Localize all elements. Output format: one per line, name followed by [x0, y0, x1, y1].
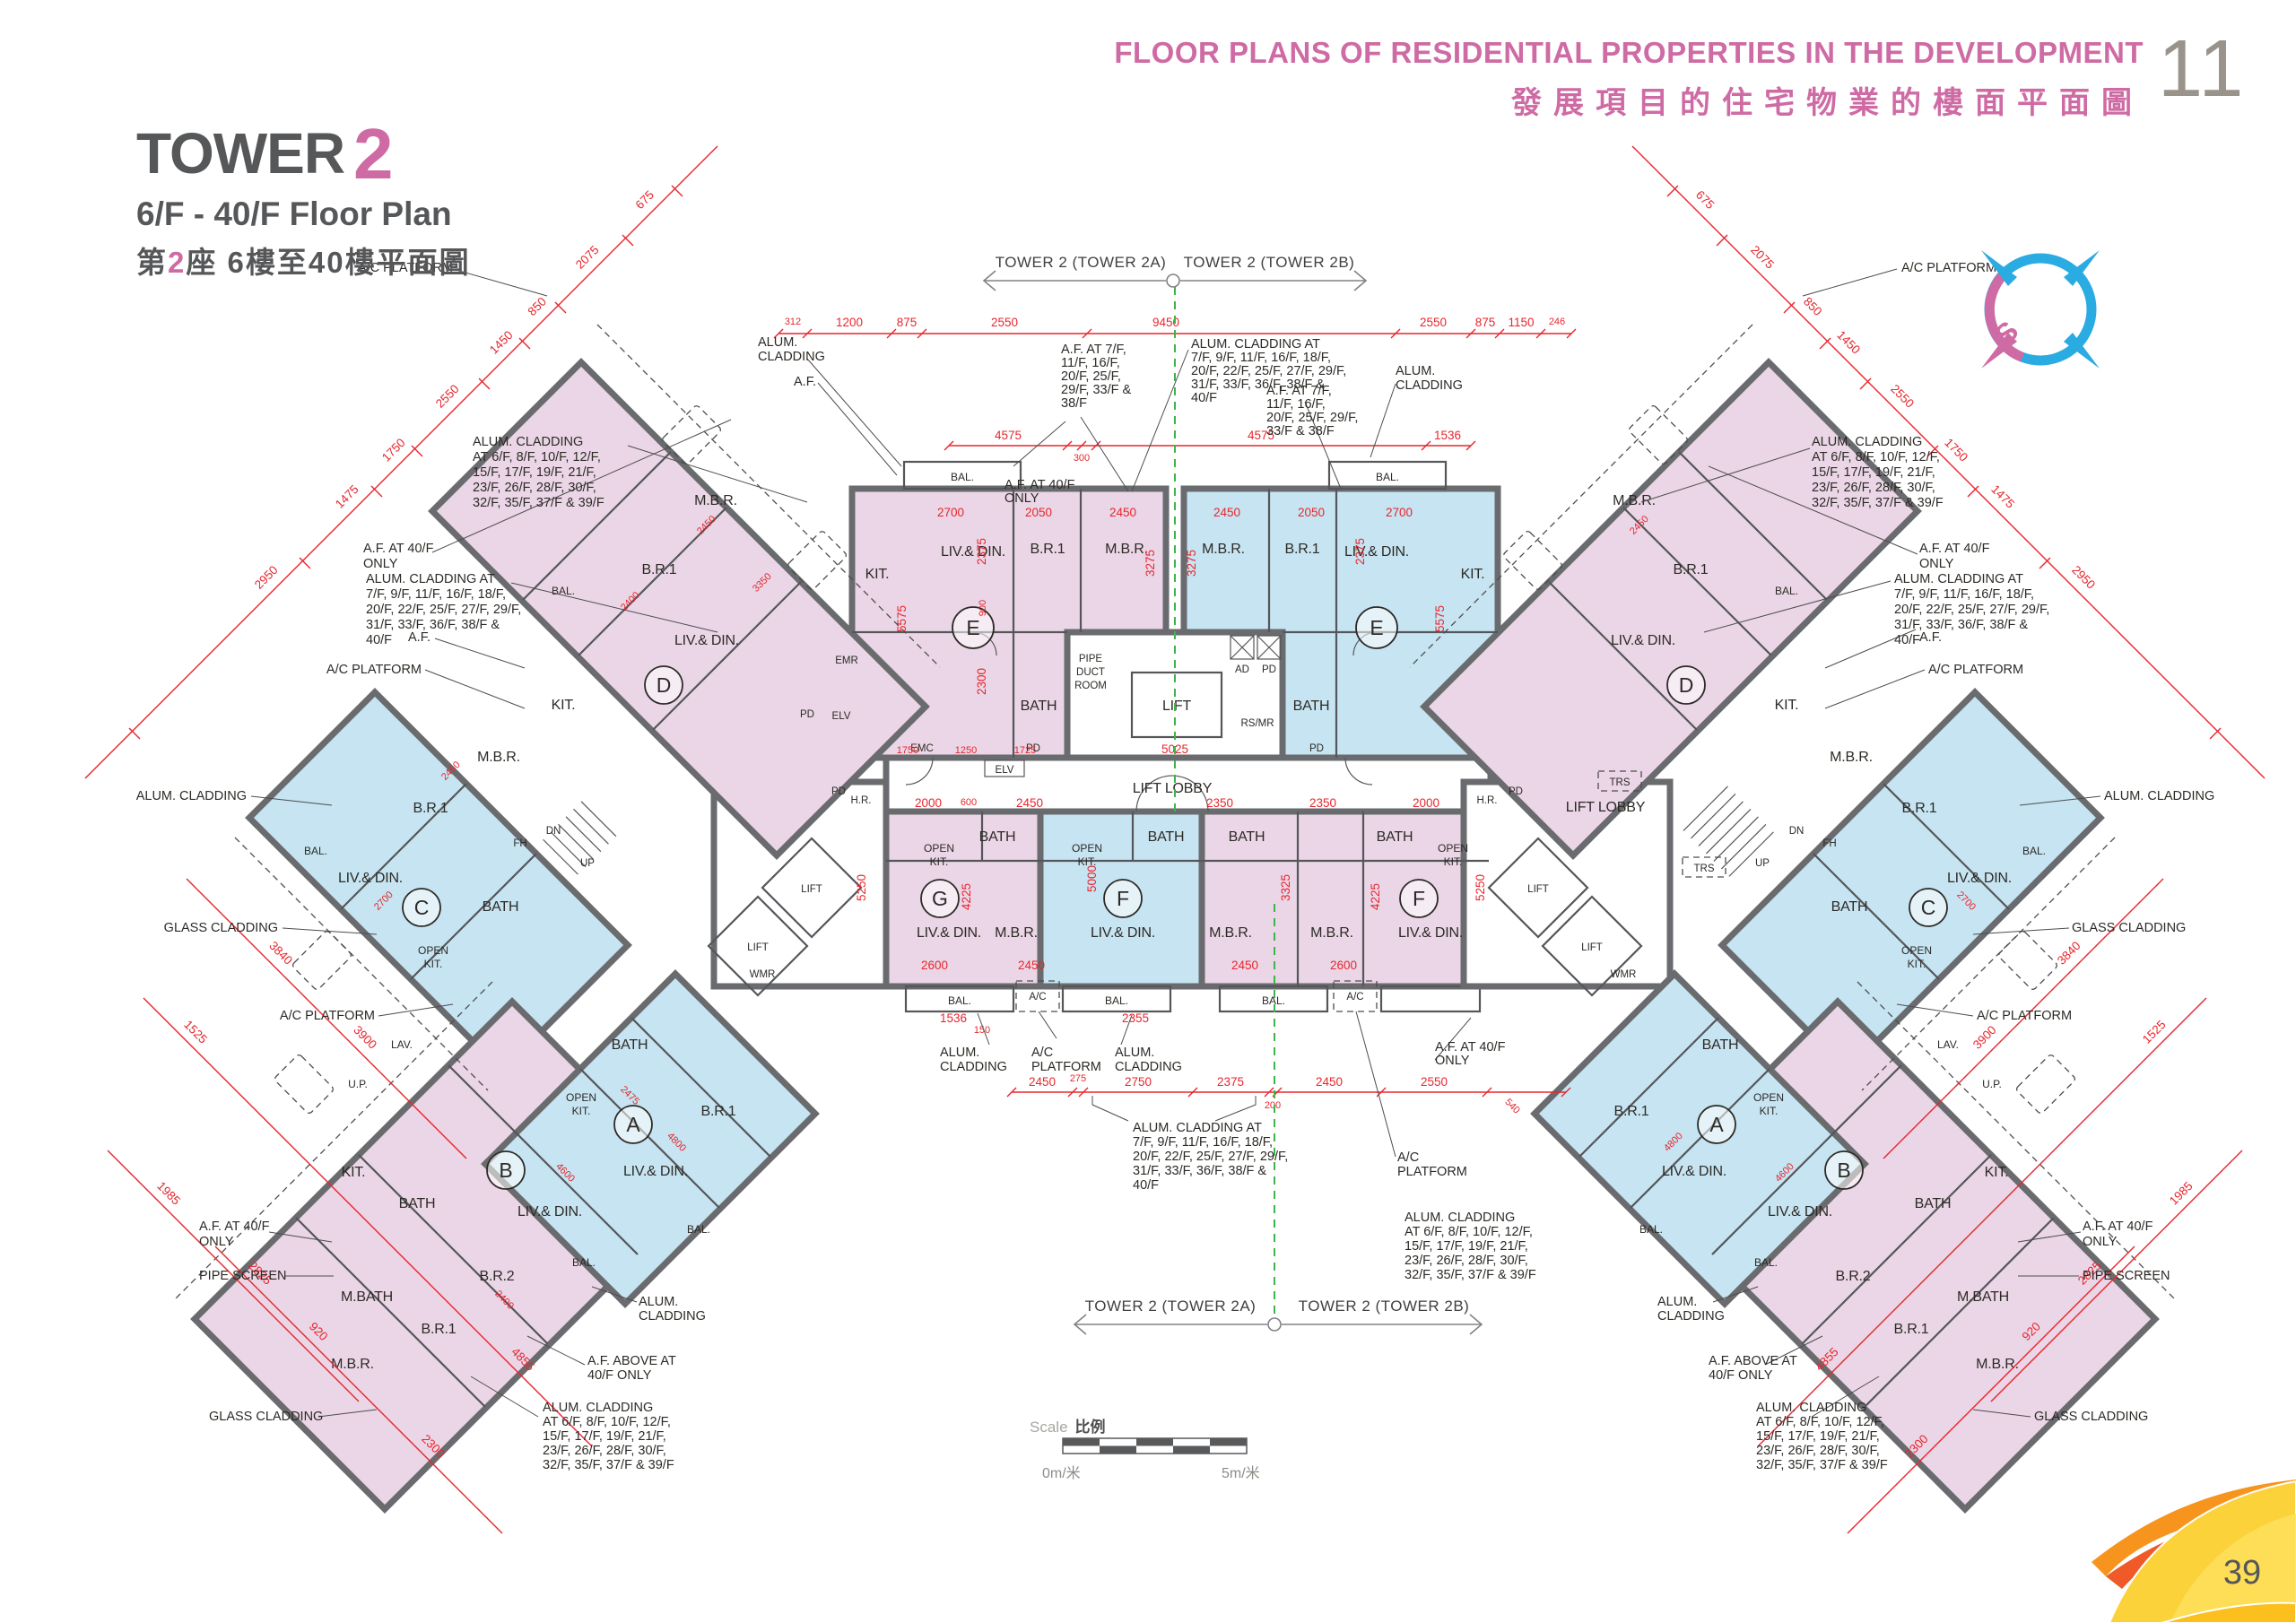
balcony-strip — [1381, 986, 1480, 1011]
dim-label: 4225 — [1369, 883, 1382, 910]
unit-letter: A — [626, 1113, 640, 1136]
annotation: A/C PLATFORM — [326, 663, 422, 677]
svg-text:ALUM. CLADDINGAT 6/F, 8/F, 10/: ALUM. CLADDINGAT 6/F, 8/F, 10/F, 12/F,15… — [1405, 1211, 1536, 1282]
dim-label: 1525 — [181, 1018, 210, 1046]
dim-label: 2450 — [1018, 959, 1045, 972]
dim-label: 2450 — [1316, 1075, 1343, 1089]
tower-label: TOWER — [136, 121, 344, 186]
room-label: LIFT — [1581, 942, 1603, 953]
svg-text:Scale比例: Scale比例 — [1030, 1418, 1106, 1436]
svg-text:A.F. AT 40/FONLY: A.F. AT 40/FONLY — [1435, 1040, 1506, 1068]
room-label: BAL. — [572, 1256, 596, 1269]
dim-label: 900 — [978, 600, 988, 616]
room-label: BATH — [1377, 829, 1413, 845]
dim-label: 2350 — [1309, 796, 1336, 810]
room-label: BATH — [1293, 699, 1330, 714]
dim-label: 246 — [1549, 317, 1565, 327]
room-label: LIFT — [747, 942, 769, 953]
room-label: EMR — [835, 655, 858, 666]
room-label: BATH — [1148, 829, 1185, 845]
room-label: KIT. — [1775, 698, 1799, 713]
room-label: H.R. — [1477, 795, 1498, 806]
room-label: LAV. — [1937, 1038, 1959, 1051]
room-label: BAL. — [687, 1223, 710, 1236]
dim-label: 2700 — [1386, 506, 1413, 519]
room-label: M.B.R. — [331, 1357, 374, 1372]
annotation: A.F. — [794, 375, 816, 389]
room-label: OPEN — [566, 1091, 596, 1104]
room-label: OPEN — [418, 944, 448, 957]
header-title-en: FLOOR PLANS OF RESIDENTIAL PROPERTIES IN… — [1114, 36, 2144, 70]
svg-text:A.F. AT 7/F,11/F, 16/F,20/F, 2: A.F. AT 7/F,11/F, 16/F,20/F, 25/F, 29/F,… — [1266, 384, 1358, 438]
svg-text:A.F. AT 40/FONLY: A.F. AT 40/FONLY — [1919, 542, 1990, 571]
room-label: ELV — [832, 711, 851, 722]
scale-five: 5m/米 — [1222, 1465, 1260, 1481]
dim-label: 675 — [1693, 188, 1718, 213]
floor-range-en: 6/F - 40/F Floor Plan — [136, 195, 471, 233]
room-label: BAL. — [948, 994, 971, 1007]
room-label: B.R.1 — [413, 801, 448, 816]
dim-label: 2050 — [1025, 506, 1052, 519]
annotation: GLASS CLADDING — [164, 921, 278, 935]
room-label: OPEN — [1072, 842, 1102, 855]
dim-label: 2000 — [1413, 796, 1439, 810]
dim-label: 875 — [897, 316, 918, 329]
annotation: ALUM. CLADDING — [2104, 789, 2214, 803]
room-label: FH — [513, 838, 526, 849]
tower-2b-label: TOWER 2 (TOWER 2B) — [1299, 1298, 1470, 1315]
compass: S — [1981, 250, 2100, 369]
room-label: BAL. — [951, 471, 974, 483]
room-label: LIFT — [1162, 699, 1192, 714]
room-label: B.R.2 — [1835, 1269, 1870, 1284]
brochure-page: FLOOR PLANS OF RESIDENTIAL PROPERTIES IN… — [0, 0, 2296, 1623]
room-label: M.BATH — [341, 1289, 393, 1305]
room-label: H.R. — [851, 795, 872, 806]
room-label: PD — [1262, 664, 1276, 675]
room-label: KIT. — [865, 567, 890, 582]
unit-letter: E — [966, 616, 979, 639]
svg-text:ALUM.CLADDING: ALUM.CLADDING — [1657, 1295, 1725, 1324]
room-label: KIT. — [1461, 567, 1485, 582]
room-label: PD — [800, 709, 814, 720]
dim-label: 2375 — [1217, 1075, 1244, 1089]
dim-label: 2050 — [1298, 506, 1325, 519]
dim-label: 2700 — [937, 506, 964, 519]
section-number: 11 — [2158, 23, 2245, 116]
dim-label: 300 — [1074, 453, 1090, 464]
room-label: A/C — [1346, 992, 1363, 1002]
header-title-zh: 發展項目的住宅物業的樓面平面圖 — [1114, 78, 2144, 122]
room-label: U.P. — [348, 1078, 368, 1090]
room-label: BATH — [1702, 1037, 1739, 1053]
room-label: OPEN — [1753, 1091, 1784, 1104]
room-label: BATH — [399, 1196, 436, 1211]
unit-letter: B — [1837, 1159, 1850, 1182]
annotation: A/C PLATFORM — [1977, 1009, 2072, 1023]
room-label: DN — [546, 826, 561, 837]
scale-zero: 0m/米 — [1042, 1465, 1081, 1481]
dim-label: 275 — [1070, 1073, 1086, 1084]
annotation: A.F. — [408, 630, 430, 645]
dim-label: 2550 — [1421, 1075, 1448, 1089]
dim-label: 5575 — [895, 605, 909, 632]
unit-letter: D — [657, 673, 672, 697]
scale-label-zh: 比例 — [1075, 1418, 1106, 1436]
room-label: RS/MR — [1240, 718, 1274, 729]
dim-label: 2750 — [1125, 1075, 1152, 1089]
dim-label: 2000 — [915, 796, 942, 810]
dim-label: 1750 — [897, 745, 918, 756]
room-label: BATH — [1831, 899, 1868, 915]
room-label: BAL. — [1639, 1223, 1663, 1236]
dim-label: 2300 — [975, 668, 988, 695]
room-label: LIFT LOBBY — [1566, 800, 1646, 815]
room-label: UP — [1755, 858, 1770, 869]
room-label: DN — [1789, 826, 1805, 837]
unit-letter: G — [932, 887, 948, 910]
dim-label: 1536 — [940, 1011, 967, 1025]
room-label: M.B.R. — [1105, 542, 1148, 557]
room-label: M.B.R. — [1310, 925, 1353, 941]
room-label: LIV.& DIN. — [941, 544, 1005, 560]
svg-text:ALUM. CLADDING AT7/F, 9/F, 11/: ALUM. CLADDING AT7/F, 9/F, 11/F, 16/F, 1… — [1894, 572, 2049, 647]
room-label: BATH — [979, 829, 1016, 845]
room-label: BATH — [1229, 829, 1265, 845]
room-label: ROOM — [1074, 681, 1107, 691]
dim-label: 2350 — [1206, 796, 1233, 810]
room-label: BATH — [1915, 1196, 1952, 1211]
room-label: B.R.1 — [1901, 801, 1936, 816]
tower-2b-label: TOWER 2 (TOWER 2B) — [1184, 254, 1355, 271]
svg-text:ALUM.CLADDING: ALUM.CLADDING — [940, 1046, 1007, 1074]
room-label: BAL. — [1376, 471, 1399, 483]
room-label: B.R.1 — [1284, 542, 1319, 557]
dim-label: 2600 — [1330, 959, 1357, 972]
room-label: KIT. — [930, 855, 949, 868]
room-label: M.B.R. — [1613, 493, 1656, 508]
unit-letter: C — [414, 896, 430, 919]
room-label: PD — [831, 786, 846, 797]
room-label: M.BATH — [1957, 1289, 2009, 1305]
room-label: M.B.R. — [694, 493, 737, 508]
dim-label: 1200 — [836, 316, 863, 329]
dim-label: 5250 — [855, 874, 868, 901]
room-label: BAL. — [1105, 994, 1128, 1007]
room-label: PIPE — [1079, 654, 1103, 664]
dim-label: 1985 — [2167, 1179, 2196, 1208]
dim-label: 1150 — [1508, 316, 1534, 329]
annotation: A/C PLATFORM — [1928, 663, 2023, 677]
dim-label: 1725 — [1014, 745, 1036, 756]
room-label: LIV.& DIN. — [1091, 925, 1155, 941]
dim-label: 3325 — [1279, 874, 1292, 901]
room-label: BATH — [612, 1037, 648, 1053]
room-label: B.R.1 — [641, 562, 676, 577]
room-label: LIV.& DIN. — [338, 871, 403, 886]
dim-label: 2450 — [1231, 959, 1258, 972]
svg-text:ALUM.CLADDING: ALUM.CLADDING — [1115, 1046, 1182, 1074]
room-label: BAL. — [2022, 845, 2046, 857]
room-label: B.R.1 — [1893, 1322, 1928, 1337]
svg-text:A.F. ABOVE AT40/F ONLY: A.F. ABOVE AT40/F ONLY — [1709, 1354, 1797, 1383]
unit-letter: F — [1117, 887, 1129, 910]
annotation: GLASS CLADDING — [2034, 1410, 2148, 1424]
room-label: ELV — [996, 765, 1014, 776]
room-label: M.B.R. — [477, 750, 520, 765]
room-label: LAV. — [391, 1038, 413, 1051]
svg-text:ALUM. CLADDING AT7/F, 9/F, 11/: ALUM. CLADDING AT7/F, 9/F, 11/F, 16/F, 1… — [366, 572, 521, 647]
dim-label: 4575 — [995, 429, 1022, 442]
room-label: KIT. — [572, 1105, 591, 1117]
page-header: FLOOR PLANS OF RESIDENTIAL PROPERTIES IN… — [1114, 36, 2144, 122]
unit-letter: D — [1679, 673, 1694, 697]
dim-label: 2450 — [1213, 506, 1240, 519]
dim-label: 600 — [961, 797, 977, 808]
annotation: A/C PLATFORM — [1901, 261, 1996, 275]
room-label: BATH — [483, 899, 519, 915]
annotation: PIPE SCREEN — [199, 1269, 287, 1283]
room-label: U.P. — [1982, 1078, 2002, 1090]
dim-label: 5000 — [1085, 865, 1099, 892]
room-label: KIT. — [342, 1165, 366, 1180]
dim-label: 1250 — [955, 745, 977, 756]
svg-text:A.F. AT 40/FONLY: A.F. AT 40/FONLY — [2083, 1219, 2153, 1249]
annotation: ALUM. CLADDING — [136, 789, 247, 803]
dim-label: 3275 — [1185, 550, 1198, 577]
room-label: KIT. — [424, 958, 443, 970]
room-label: WMR — [750, 969, 776, 980]
corner-swoosh: 39 — [2092, 1480, 2296, 1623]
unit-letter: B — [499, 1159, 512, 1182]
dim-label: 1985 — [154, 1179, 183, 1208]
svg-text:ALUM. CLADDINGAT 6/F, 8/F, 10/: ALUM. CLADDINGAT 6/F, 8/F, 10/F, 12/F,15… — [543, 1401, 674, 1472]
room-label: TRS — [1694, 864, 1715, 874]
annotation: A/C PLATFORM — [280, 1009, 375, 1023]
dim-label: 2450 — [1016, 796, 1043, 810]
room-label: B.R.1 — [421, 1322, 456, 1337]
room-label: OPEN — [924, 842, 954, 855]
room-label: LIV.& DIN. — [517, 1204, 582, 1219]
svg-text:A/CPLATFORM: A/CPLATFORM — [1031, 1046, 1101, 1074]
dim-label: 4225 — [960, 883, 973, 910]
svg-text:ALUM.CLADDING: ALUM.CLADDING — [758, 335, 825, 364]
room-label: LIFT LOBBY — [1133, 781, 1213, 796]
annotation: GLASS CLADDING — [209, 1410, 323, 1424]
room-label: B.R.1 — [1673, 562, 1708, 577]
dim-label: 1525 — [2140, 1018, 2169, 1046]
svg-text:ALUM. CLADDING AT7/F, 9/F, 11/: ALUM. CLADDING AT7/F, 9/F, 11/F, 16/F, 1… — [1133, 1121, 1288, 1193]
tower-number: 2 — [353, 114, 393, 194]
room-label: KIT. — [1760, 1105, 1779, 1117]
dim-label: 2450 — [1109, 506, 1136, 519]
room-label: B.R.1 — [700, 1104, 735, 1119]
unit-letter: C — [1921, 896, 1936, 919]
tower-2a-label: TOWER 2 (TOWER 2A) — [1085, 1298, 1257, 1315]
room-label: B.R.2 — [479, 1269, 514, 1284]
room-label: LIV.& DIN. — [1398, 925, 1463, 941]
annotation: PIPE SCREEN — [2083, 1269, 2170, 1283]
room-label: PD — [1309, 743, 1324, 754]
room-label: TRS — [1610, 777, 1631, 788]
room-label: LIFT — [1527, 884, 1549, 895]
dim-label: 200 — [1265, 1100, 1281, 1111]
room-label: A/C — [1029, 992, 1046, 1002]
room-label: M.B.R. — [1976, 1357, 2019, 1372]
room-label: M.B.R. — [1202, 542, 1245, 557]
tower-2a-label: TOWER 2 (TOWER 2A) — [996, 254, 1167, 271]
svg-text:A.F. ABOVE AT40/F ONLY: A.F. ABOVE AT40/F ONLY — [587, 1354, 676, 1383]
room-label: B.R.1 — [1613, 1104, 1648, 1119]
room-label: KIT. — [1908, 958, 1926, 970]
annotation: GLASS CLADDING — [2072, 921, 2186, 935]
room-label: PD — [1509, 786, 1523, 797]
dim-label: 850 — [526, 295, 550, 319]
title-block: TOWER2 6/F - 40/F Floor Plan 第2座 6樓至40樓平… — [136, 118, 471, 282]
room-label: KIT. — [1444, 855, 1463, 868]
room-label: WMR — [1611, 969, 1637, 980]
dim-label: 2375 — [1353, 538, 1367, 565]
scale-bar: Scale比例 0m/米 5m/米 — [1030, 1418, 1260, 1481]
room-label: OPEN — [1438, 842, 1468, 855]
dim-label: 540 — [1502, 1097, 1521, 1115]
dim-label: 1536 — [1434, 429, 1461, 442]
floor-range-zh: 第2座 6樓至40樓平面圖 — [136, 239, 471, 282]
room-label: BAL. — [1775, 585, 1798, 597]
room-label: LIV.& DIN. — [1768, 1204, 1832, 1219]
page-number: 39 — [2223, 1554, 2261, 1592]
dim-label: 3275 — [1144, 550, 1157, 577]
room-label: LIV.& DIN. — [1947, 871, 2012, 886]
dim-label: 850 — [1801, 295, 1825, 319]
room-label: OPEN — [1901, 944, 1932, 957]
dim-label: 875 — [1475, 316, 1496, 329]
room-label: LIV.& DIN. — [623, 1164, 688, 1179]
dim-label: 5250 — [1474, 874, 1487, 901]
room-label: FH — [1822, 838, 1836, 849]
dim-label: 5575 — [1433, 605, 1447, 632]
unit-letter: E — [1370, 616, 1383, 639]
room-label: M.B.R. — [1209, 925, 1252, 941]
room-label: BAL. — [304, 845, 327, 857]
room-label: LIV.& DIN. — [917, 925, 981, 941]
dim-label: 675 — [633, 188, 657, 213]
svg-text:ALUM. CLADDINGAT 6/F, 8/F, 10/: ALUM. CLADDINGAT 6/F, 8/F, 10/F, 12/F,15… — [1812, 435, 1944, 510]
dim-label: 2355 — [1122, 1011, 1149, 1025]
room-label: BATH — [1021, 699, 1057, 714]
dim-label: 312 — [785, 317, 801, 327]
svg-text:A.F. AT 7/F,11/F, 16/F,20/F, 2: A.F. AT 7/F,11/F, 16/F,20/F, 25/F,29/F, … — [1061, 343, 1132, 411]
room-label: KIT. — [552, 698, 576, 713]
room-label: B.R.1 — [1030, 542, 1065, 557]
dim-label: 2550 — [991, 316, 1018, 329]
room-label: KIT. — [1985, 1165, 2009, 1180]
room-label: LIFT — [801, 884, 822, 895]
svg-text:ALUM.CLADDING: ALUM.CLADDING — [1396, 364, 1463, 393]
unit-letter: A — [1709, 1113, 1724, 1136]
room-label: LIV.& DIN. — [674, 633, 739, 648]
svg-text:A.F. AT 40/FONLY: A.F. AT 40/FONLY — [199, 1219, 270, 1249]
room-label: UP — [580, 858, 595, 869]
annotation: A.F. — [1919, 630, 1942, 645]
dim-label: 2600 — [921, 959, 948, 972]
dim-label: 2450 — [1029, 1075, 1056, 1089]
svg-text:A/CPLATFORM: A/CPLATFORM — [1397, 1150, 1467, 1179]
room-label: LIV.& DIN. — [1662, 1164, 1726, 1179]
room-label: LIV.& DIN. — [1611, 633, 1675, 648]
room-label: BAL. — [1754, 1256, 1778, 1269]
room-label: M.B.R. — [1830, 750, 1873, 765]
svg-text:A.F. AT 40/FONLY: A.F. AT 40/FONLY — [363, 542, 434, 571]
dim-label: 2375 — [975, 538, 988, 565]
unit-letter: F — [1413, 887, 1425, 910]
dim-label: 2550 — [1420, 316, 1447, 329]
room-label: AD — [1235, 664, 1249, 675]
scale-label-en: Scale — [1030, 1419, 1068, 1436]
svg-text:ALUM.CLADDING: ALUM.CLADDING — [639, 1295, 706, 1324]
room-label: DUCT — [1076, 667, 1105, 678]
room-label: M.B.R. — [995, 925, 1038, 941]
